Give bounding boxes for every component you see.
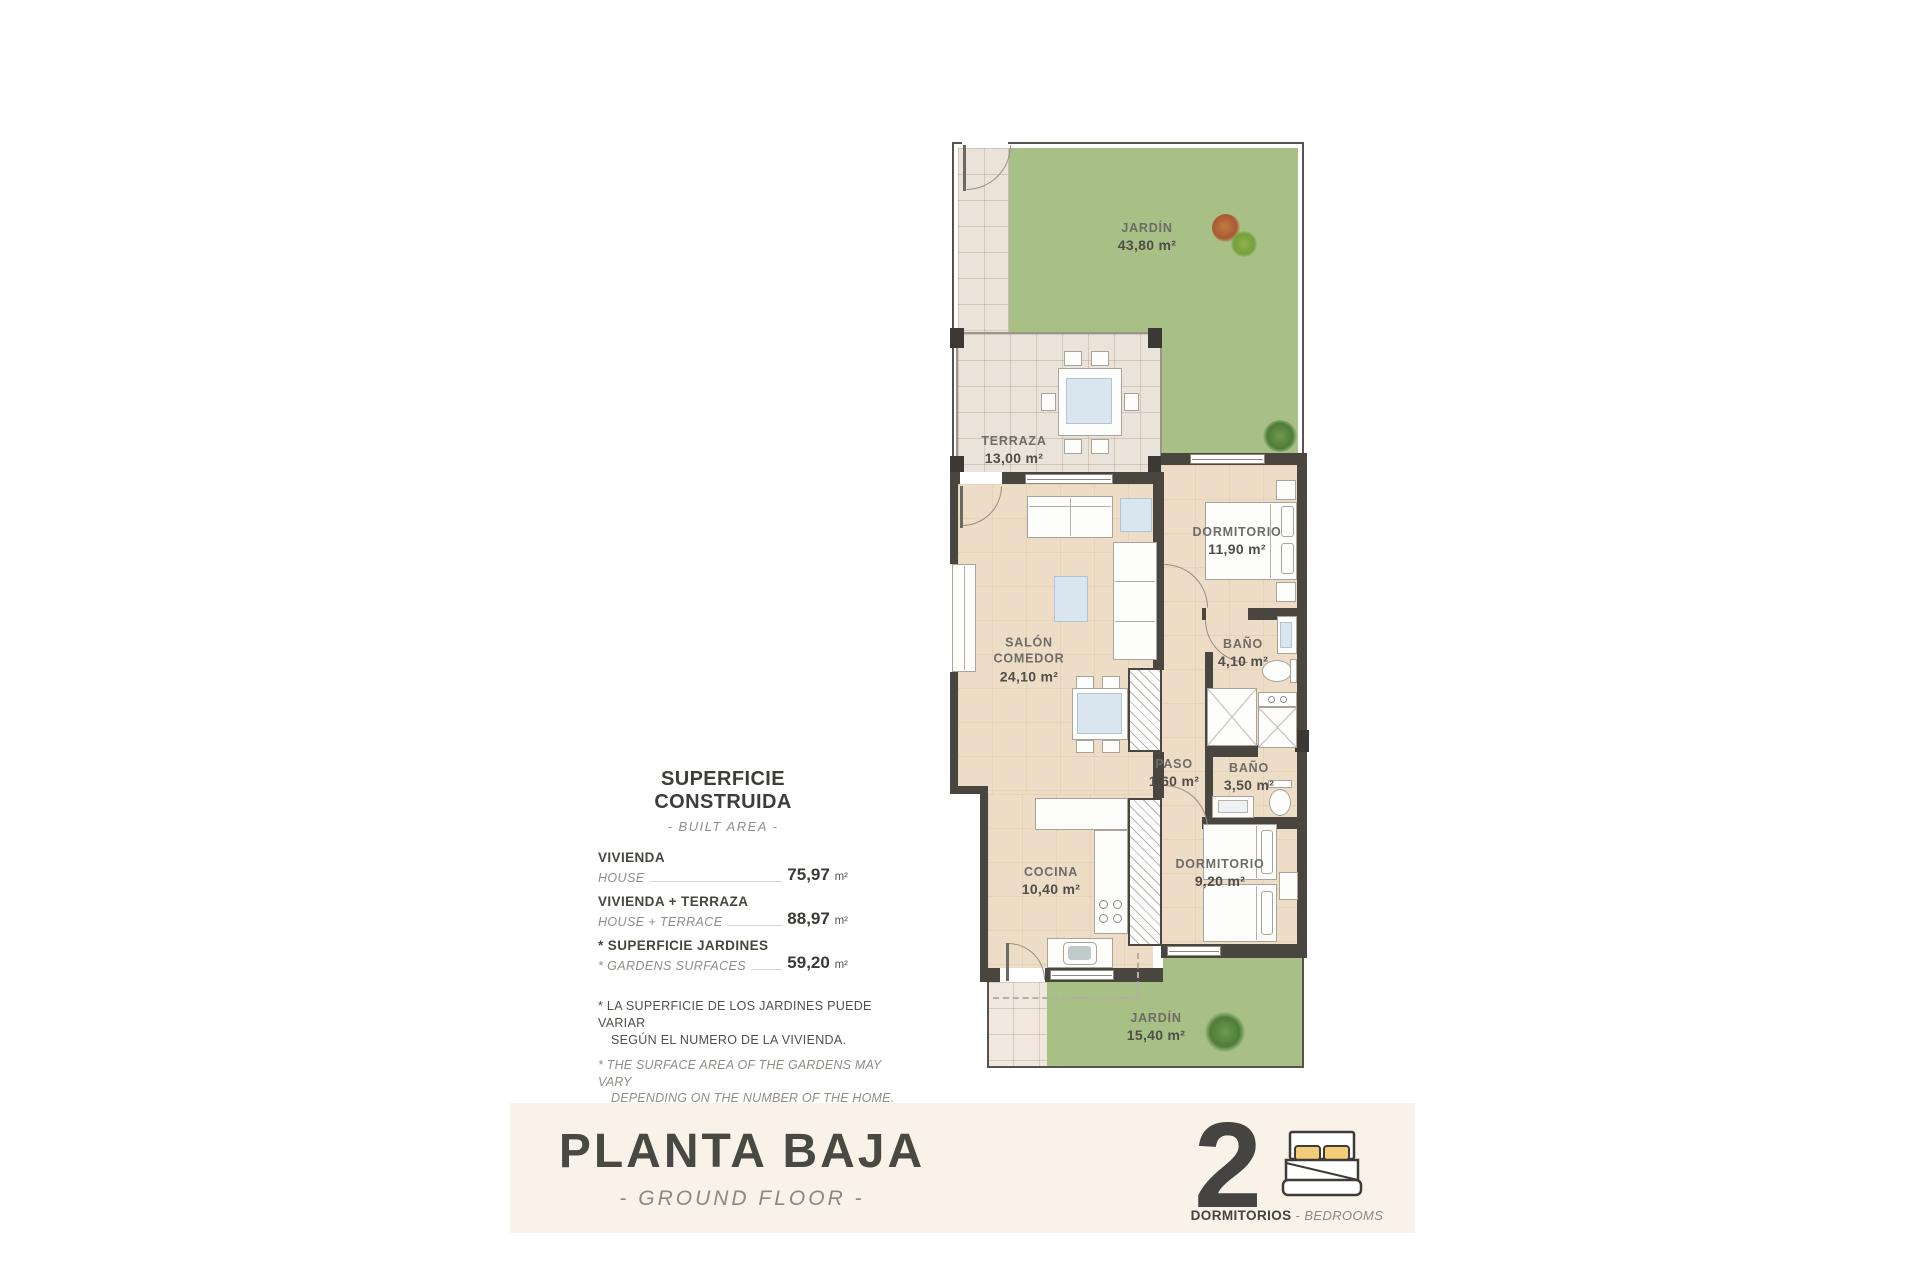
bedroom1-window (1190, 454, 1265, 464)
pillow (1261, 891, 1273, 935)
bedroom-caption-sep: - (1292, 1208, 1305, 1223)
side-table (1120, 498, 1152, 532)
terrace-pillar (950, 328, 964, 348)
pillow (1281, 543, 1294, 574)
bath2-sink (1212, 796, 1254, 818)
nightstand (1276, 582, 1296, 602)
floor-subtitle: - GROUND FLOOR - (462, 1187, 1022, 1211)
sofa (1027, 496, 1113, 538)
closet (1128, 668, 1162, 752)
garden-footnote: * LA SUPERFICIE DE LOS JARDINES PUEDE VA… (598, 998, 908, 1107)
leader-line (727, 924, 782, 926)
area-row-value: 88,97 m² (787, 909, 848, 929)
terrace-pillar (1148, 328, 1162, 348)
wall (1202, 608, 1206, 620)
area-row-label-en: * GARDENS SURFACES (598, 959, 746, 973)
area-row-label-en: HOUSE + TERRACE (598, 915, 722, 929)
bedroom-caption: DORMITORIOS - BEDROOMS (1187, 1208, 1387, 1223)
terrace-right-line (1160, 334, 1162, 456)
palm-plant-icon (1263, 420, 1297, 452)
bed-icon (1272, 1130, 1372, 1205)
kitchen-door-leaf (1006, 943, 1009, 981)
terrace-chair (1041, 393, 1056, 411)
label-dormitorio1: DORMITORIO11,90 m² (1192, 524, 1281, 558)
terrace-chair (1064, 351, 1082, 366)
area-row-label-es: * SUPERFICIE JARDINES (598, 938, 848, 953)
terrace-chair (1124, 393, 1139, 411)
kitchen-sink (1063, 942, 1097, 965)
wall (950, 786, 988, 794)
dining-table (1072, 688, 1128, 740)
bush-green-icon (1231, 231, 1257, 257)
garden-dashed-divider (993, 997, 1137, 999)
pillar (1295, 730, 1309, 752)
garden-dashed-divider (1137, 953, 1139, 997)
dining-chair (1076, 740, 1094, 753)
label-salon: SALÓN COMEDOR 24,10 m² (994, 635, 1065, 686)
terrace-chair (1091, 439, 1109, 454)
sliding-door (952, 564, 976, 672)
label-paso: PASO1,60 m² (1149, 756, 1199, 790)
area-row-label-es: VIVIENDA (598, 850, 848, 865)
floor-plan: JARDÍN43,80 m² TERRAZA13,00 m² SALÓN COM… (950, 140, 1312, 1085)
footnote-en-line1: * THE SURFACE AREA OF THE GARDENS MAY VA… (598, 1057, 908, 1091)
kitchen-counter (1035, 798, 1128, 830)
salon-door-opening (960, 472, 1002, 484)
garden-plant-icon (1205, 1012, 1245, 1052)
terrace-chair (1064, 439, 1082, 454)
chaise-sofa (1113, 542, 1157, 660)
area-row: VIVIENDA + TERRAZA HOUSE + TERRACE 88,97… (598, 894, 848, 929)
label-dormitorio2: DORMITORIO9,20 m² (1175, 856, 1264, 890)
panel-subtitle: - BUILT AREA - (598, 819, 848, 834)
closet (1128, 798, 1162, 946)
bath2-shower (1258, 707, 1297, 748)
label-bano2: BAÑO3,50 m² (1224, 760, 1274, 794)
footnote-es-line1: * LA SUPERFICIE DE LOS JARDINES PUEDE VA… (598, 998, 908, 1032)
bath1-sink (1277, 616, 1297, 654)
label-jardin-top: JARDÍN43,80 m² (1118, 220, 1176, 254)
label-bano1: BAÑO4,10 m² (1218, 636, 1268, 670)
nightstand (1279, 872, 1298, 900)
washer-counter (1258, 692, 1297, 707)
floor-title-block: PLANTA BAJA - GROUND FLOOR - (462, 1124, 1022, 1211)
bath1-toilet-tank (1290, 659, 1297, 683)
bedroom-caption-es: DORMITORIOS (1191, 1208, 1292, 1223)
area-row: * SUPERFICIE JARDINES * GARDENS SURFACES… (598, 938, 848, 973)
coffee-table (1054, 576, 1088, 622)
dining-chair (1076, 676, 1094, 689)
bath1-shower (1207, 688, 1257, 746)
panel-title: SUPERFICIE CONSTRUIDA (598, 768, 848, 814)
salon-door-leaf (960, 486, 963, 528)
kitchen-window (1050, 970, 1114, 980)
area-row-label-es: VIVIENDA + TERRAZA (598, 894, 848, 909)
pillow (1281, 506, 1294, 537)
label-cocina: COCINA10,40 m² (1022, 864, 1080, 898)
bedroom-caption-en: BEDROOMS (1304, 1208, 1383, 1223)
dining-chair (1102, 676, 1120, 689)
area-row: VIVIENDA HOUSE 75,97 m² (598, 850, 848, 885)
nightstand (1276, 480, 1296, 500)
built-area-panel: SUPERFICIE CONSTRUIDA - BUILT AREA - VIV… (598, 768, 848, 982)
terrace-table (1058, 368, 1122, 436)
bedroom2-window (1167, 946, 1221, 956)
garden-bottom-line (987, 1066, 1304, 1068)
label-jardin-bottom: JARDÍN15,40 m² (1127, 1010, 1185, 1044)
terrace-chair (1091, 351, 1109, 366)
area-row-value: 75,97 m² (787, 865, 848, 885)
garden-walkway (987, 982, 1047, 1066)
area-row-value: 59,20 m² (787, 953, 848, 973)
garden-bottom-left-line (987, 982, 989, 1068)
label-terraza: TERRAZA13,00 m² (981, 433, 1046, 467)
floor-title: PLANTA BAJA (462, 1124, 1022, 1179)
garden-bottom-right-line (1302, 958, 1304, 1068)
footnote-es-line2: SEGÚN EL NUMERO DE LA VIVIENDA. (598, 1032, 908, 1049)
wall (980, 794, 988, 970)
salon-window (1025, 474, 1113, 484)
wall (1297, 453, 1307, 958)
leader-line (751, 968, 782, 970)
area-row-label-en: HOUSE (598, 871, 644, 885)
leader-line (649, 880, 782, 882)
dining-chair (1102, 740, 1120, 753)
